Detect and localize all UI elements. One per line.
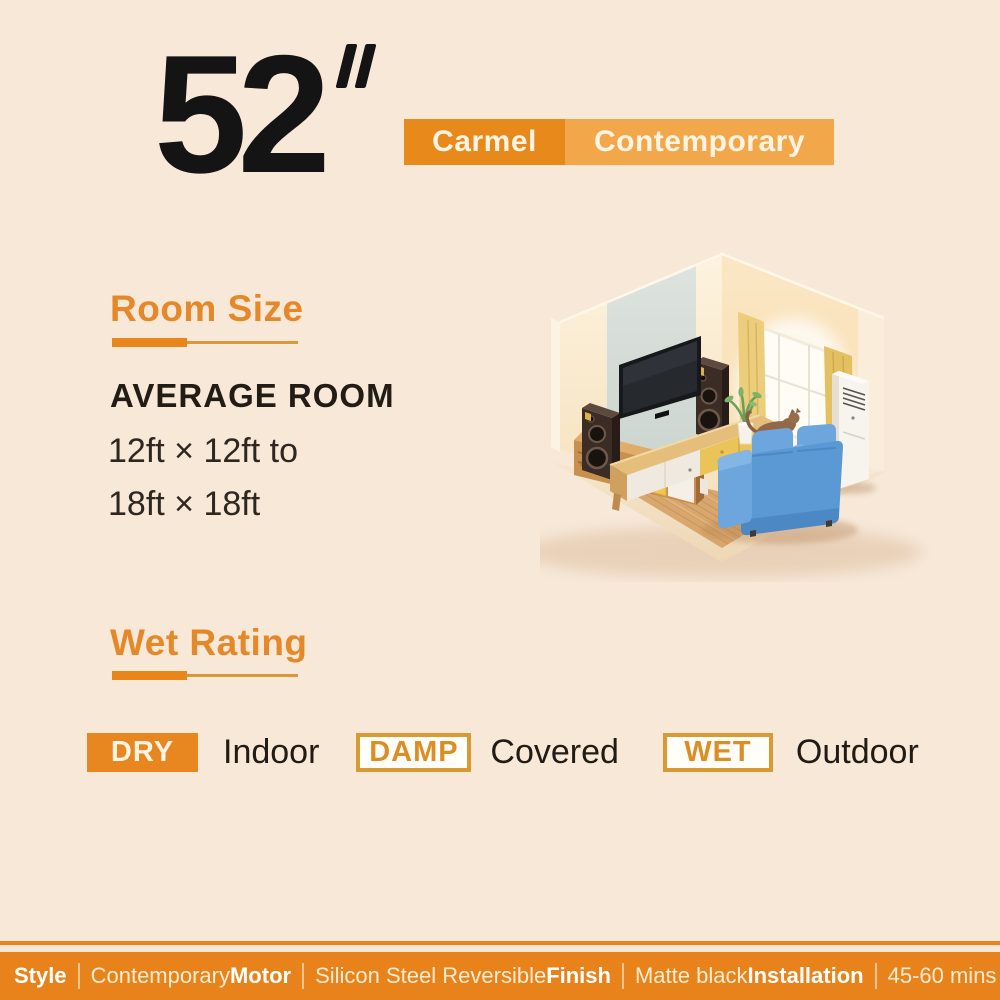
- spec-divider: [78, 963, 80, 989]
- spec-motor: Motor Silicon Steel Reversible: [230, 963, 546, 989]
- spec-divider: [302, 963, 304, 989]
- footer-accent-line: [0, 941, 1000, 945]
- inch-double-prime-icon: [341, 44, 371, 88]
- damp-label: Covered: [490, 733, 619, 772]
- wet-badge: WET: [663, 733, 773, 772]
- spec-style: Style Contemporary: [14, 963, 230, 989]
- room-illustration: Isometric living room with wall TV, spea…: [540, 192, 970, 582]
- spec-divider: [875, 963, 877, 989]
- dry-label: Indoor: [223, 733, 319, 772]
- spec-finish-label: Finish: [546, 963, 611, 989]
- wet-label: Outdoor: [796, 733, 919, 772]
- spec-style-value: Contemporary: [91, 963, 230, 989]
- average-room-label: AVERAGE ROOM: [110, 377, 395, 415]
- product-infographic: 52 Carmel Contemporary Room Size AVERAGE…: [0, 0, 1000, 1000]
- room-dimensions-line1: 12ft × 12ft to: [108, 425, 298, 478]
- wet-rating-underline: [112, 671, 298, 680]
- fan-size-value: 52: [154, 30, 321, 198]
- spec-bar: Style Contemporary Motor Silicon Steel R…: [0, 952, 1000, 1000]
- room-dimensions-line2: 18ft × 18ft: [108, 478, 298, 531]
- spec-divider: [622, 963, 624, 989]
- series-badge: Carmel Contemporary: [404, 119, 834, 165]
- spec-installation: Installation 45-60 mins: [747, 963, 996, 989]
- series-name-badge: Carmel: [404, 119, 565, 165]
- spec-finish-value: Matte black: [635, 963, 748, 989]
- damp-badge: DAMP: [356, 733, 471, 772]
- room-size-underline: [112, 338, 298, 347]
- spec-installation-value: 45-60 mins: [888, 963, 997, 989]
- wet-rating-row: DRY Indoor DAMP Covered WET Outdoor: [87, 733, 919, 772]
- spec-installation-label: Installation: [747, 963, 863, 989]
- spec-style-label: Style: [14, 963, 67, 989]
- series-collection-badge: Contemporary: [565, 119, 834, 165]
- spec-motor-label: Motor: [230, 963, 291, 989]
- wet-rating-heading: Wet Rating: [110, 622, 308, 664]
- room-dimensions: 12ft × 12ft to 18ft × 18ft: [108, 425, 298, 531]
- spec-motor-value: Silicon Steel Reversible: [315, 963, 546, 989]
- room-size-heading: Room Size: [110, 288, 304, 330]
- spec-finish: Finish Matte black: [546, 963, 747, 989]
- dry-badge: DRY: [87, 733, 198, 772]
